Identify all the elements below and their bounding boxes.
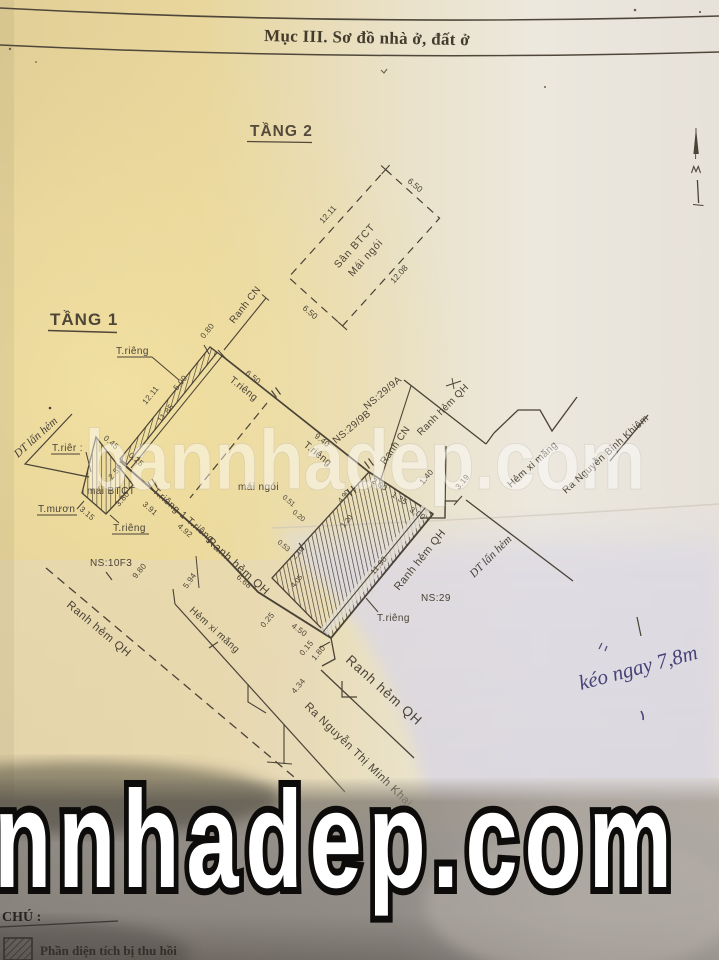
svg-text:nnhadep.com: nnhadep.com xyxy=(0,763,679,917)
svg-text:TẦNG 1: TẦNG 1 xyxy=(50,310,118,329)
svg-text:bannhadep.com: bannhadep.com xyxy=(84,413,645,507)
svg-text:T.riêng: T.riêng xyxy=(377,613,410,624)
svg-text:CHÚ :: CHÚ : xyxy=(2,908,41,925)
svg-text:T.riêng: T.riêng xyxy=(113,523,146,534)
svg-text:TẦNG 2: TẦNG 2 xyxy=(250,123,313,140)
svg-text:T.mươn: T.mươn xyxy=(38,504,75,515)
svg-text:Phần diện tích bị thu hồi: Phần diện tích bị thu hồi xyxy=(40,943,177,958)
svg-text:T.riêng: T.riêng xyxy=(116,346,149,357)
svg-text:NS:29: NS:29 xyxy=(421,593,451,604)
svg-text:NS:10F3: NS:10F3 xyxy=(90,558,132,569)
svg-text:T.riêr :: T.riêr : xyxy=(52,443,83,454)
